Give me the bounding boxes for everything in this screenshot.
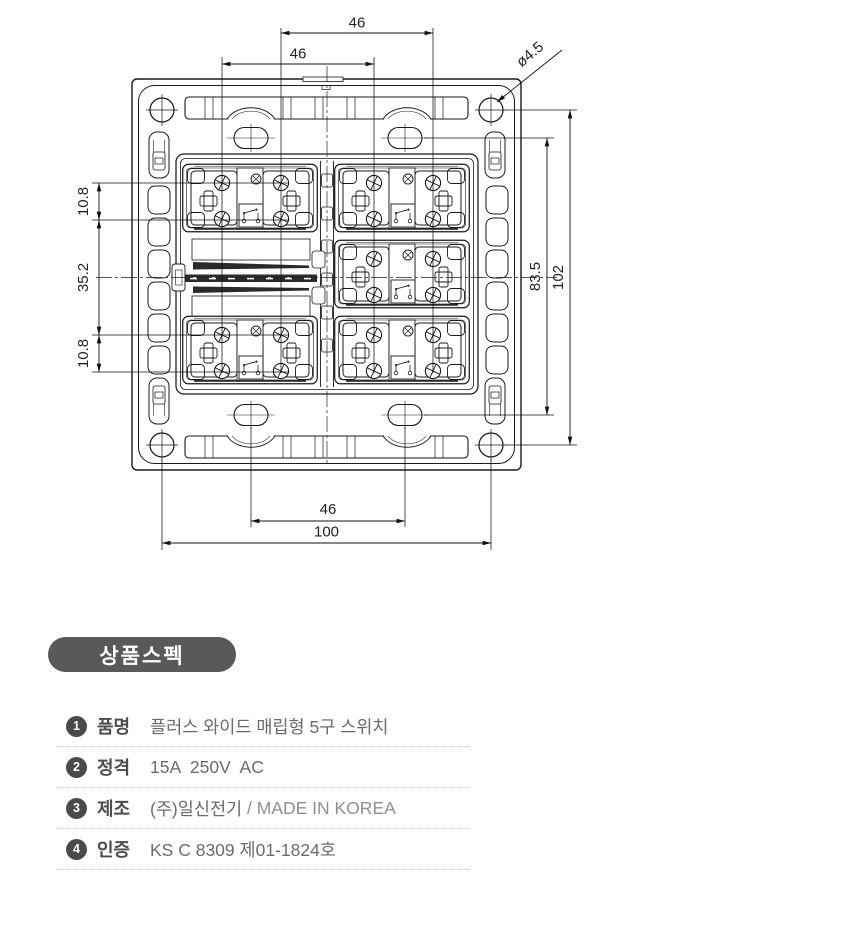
spec-number-badge: 4 [66, 839, 87, 860]
switch-module-5 [335, 316, 470, 384]
spec-label: 인증 [97, 836, 141, 862]
spec-label: 정격 [97, 754, 141, 780]
switch-module-1 [183, 164, 318, 232]
switch-module-3 [335, 164, 470, 232]
dim-left-mid: 35.2 [75, 263, 92, 292]
spec-row-manufacturer: 3 제조 (주)일신전기 / MADE IN KOREA [57, 788, 469, 829]
dim-bottom-outer: 100 [314, 524, 339, 541]
spec-value: (주)일신전기 [150, 796, 242, 821]
spec-value-secondary: / MADE IN KOREA [242, 798, 396, 819]
spec-label: 품명 [97, 713, 141, 739]
switch-module-area [172, 154, 478, 394]
dim-bottom-inner: 46 [320, 501, 337, 518]
spec-value: 플러스 와이드 매립형 5구 스위치 [150, 714, 388, 739]
switch-module-2 [183, 316, 318, 384]
switch-module-4 [335, 240, 470, 308]
dim-right-outer: 102 [550, 265, 567, 290]
spec-row-rating: 2 정격 15A 250V AC [57, 747, 469, 788]
dim-top-inner: 46 [290, 46, 307, 63]
dim-top-outer: 46 [349, 15, 366, 32]
spec-number-badge: 2 [66, 757, 87, 778]
spec-section-heading: 상품스펙 [48, 637, 236, 672]
dim-left-bottom: 10.8 [75, 339, 92, 368]
spec-heading-label: 상품스펙 [99, 640, 184, 670]
spec-row-product-name: 1 품명 플러스 와이드 매립형 5구 스위치 [57, 706, 469, 747]
technical-drawing: 46 46 ø4.5 10.8 35.2 10.8 83.5 102 46 10… [0, 0, 860, 600]
spec-number-badge: 1 [66, 716, 87, 737]
bottom-tab-band [185, 434, 468, 458]
spec-number-badge: 3 [66, 798, 87, 819]
spec-row-certification: 4 인증 KS C 8309 제01-1824호 [57, 829, 469, 870]
product-detail-page: 46 46 ø4.5 10.8 35.2 10.8 83.5 102 46 10… [0, 0, 860, 930]
spec-list: 1 품명 플러스 와이드 매립형 5구 스위치 2 정격 15A 250V AC… [57, 706, 469, 870]
spec-label: 제조 [97, 795, 141, 821]
dim-right-inner: 83.5 [527, 262, 544, 291]
spec-value: 15A 250V AC [150, 757, 264, 778]
spec-value: KS C 8309 제01-1824호 [150, 837, 336, 862]
dim-left-top: 10.8 [75, 187, 92, 216]
top-tab-band [185, 97, 468, 121]
